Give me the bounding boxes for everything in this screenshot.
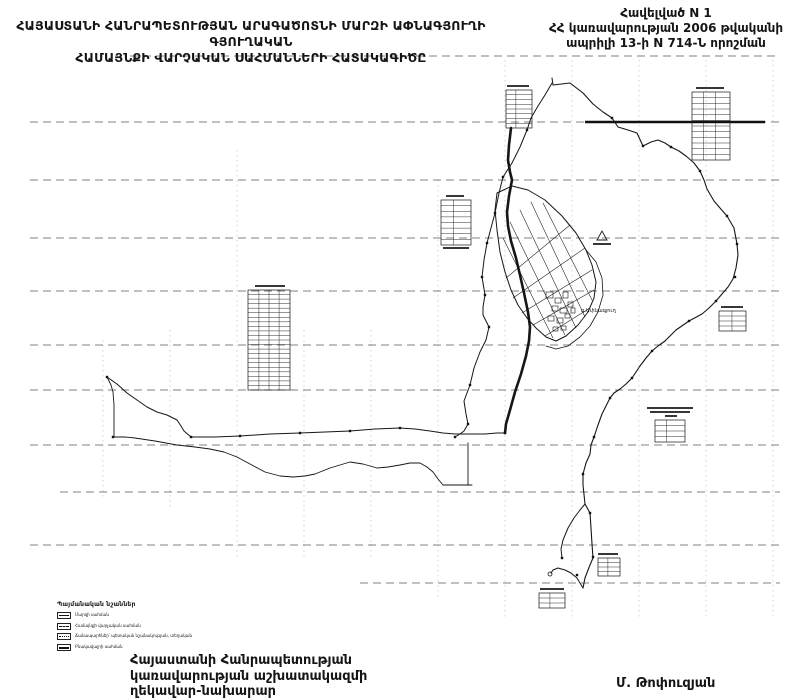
boundary-point-marker	[582, 473, 584, 475]
boundary-point-marker	[484, 294, 486, 296]
appendix-line3: ապրիլի 13-ի N 714-Ն որոշման	[546, 36, 786, 51]
map-canvas: գ.Ափնագյուղ	[0, 0, 788, 700]
boundary-point-marker	[561, 557, 563, 559]
table-caption-smudge	[443, 247, 469, 249]
boundary-point-marker	[651, 350, 653, 352]
legend: Պայմանական նշաններ Մարզի սահման Համայնքի…	[57, 601, 197, 654]
boundary-point-marker	[106, 376, 108, 378]
coord-table-bottom	[539, 588, 565, 608]
settlement-parcel	[546, 292, 553, 298]
boundary-point-marker	[592, 556, 594, 558]
legend-title: Պայմանական նշաններ	[57, 601, 197, 608]
boundary-symbol-icon	[57, 612, 71, 619]
boundary-point-marker	[399, 427, 401, 429]
settlement-parcel	[548, 316, 554, 321]
east-boundary	[553, 83, 738, 588]
settlement-parcel	[565, 314, 570, 318]
boundary-point-marker	[502, 176, 504, 178]
boundary-point-marker	[670, 146, 672, 148]
boundary-point-marker	[526, 129, 528, 131]
boundary-point-marker	[589, 512, 591, 514]
table-caption-smudge	[255, 285, 285, 287]
document-title: ՀԱՅԱՍՏԱՆԻ ՀԱՆՐԱՊԵՏՈՒԹՅԱՆ ԱՐԱԳԱԾՈՏՆԻ ՄԱՐԶ…	[10, 18, 492, 66]
settlement-symbol-icon	[57, 644, 71, 651]
table-caption-smudge	[507, 85, 529, 87]
settlement-parcel	[555, 298, 561, 303]
table-caption-smudge	[696, 87, 724, 89]
boundary-point-marker	[504, 432, 506, 434]
document-title-line2: ՀԱՄԱՅՆՔԻ ՎԱՐՉԱԿԱՆ ՍԱՀՄԱՆՆԵՐԻ ՀԱՏԱԿԱԳԻԾԸ	[10, 50, 492, 66]
coord-table-east	[719, 306, 746, 331]
coord-table-center	[441, 195, 471, 249]
table-caption-smudge	[721, 306, 743, 308]
boundary-point-marker	[239, 435, 241, 437]
boundary-point-marker	[454, 436, 456, 438]
boundary-point-marker	[734, 276, 736, 278]
boundary-point-marker	[642, 145, 644, 147]
coord-table-northeast	[692, 87, 730, 160]
boundary-point-marker	[699, 170, 701, 172]
signature-line3: ղեկավար-նախարար	[130, 684, 370, 700]
signature-line1: Հայաստանի Հանրապետության	[130, 653, 370, 669]
triangle-caption-smudge	[593, 243, 611, 245]
boundary-point-marker	[576, 574, 578, 576]
boundary-point-marker	[481, 276, 483, 278]
settlement-street-mesh	[503, 202, 594, 338]
signature-title-block: Հայաստանի Հանրապետության կառավարության ա…	[130, 653, 370, 700]
legend-item-label: Բնակավայրի սահման	[75, 645, 123, 650]
appendix-line1: Հավելված N 1	[546, 6, 786, 21]
legend-item: Համայնքի վարչական սահման	[57, 623, 197, 630]
boundary-point-marker	[190, 436, 192, 438]
appendix-note: Հավելված N 1 ՀՀ կառավարության 2006 թվակա…	[546, 6, 786, 51]
boundary-point-marker	[349, 430, 351, 432]
legend-item-label: Ճանապարհներ՝ պետական նշանակության, տեղակ…	[75, 634, 192, 639]
south-outlet	[551, 504, 585, 588]
boundary-circle-marker	[548, 572, 552, 576]
boundary-point-marker	[715, 300, 717, 302]
boundary-point-marker	[469, 384, 471, 386]
table-caption-smudge	[665, 415, 677, 417]
appendix-line2: ՀՀ կառավարության 2006 թվականի	[546, 21, 786, 36]
legend-item: Մարզի սահման	[57, 612, 197, 619]
boundary-point-marker	[726, 215, 728, 217]
coord-table-south	[598, 553, 620, 576]
legend-item: Ճանապարհներ՝ պետական նշանակության, տեղակ…	[57, 633, 197, 640]
boundary-point-marker	[631, 377, 633, 379]
legend-item-label: Համայնքի վարչական սահման	[75, 624, 141, 629]
boundary-point-marker	[688, 320, 690, 322]
signer-name: Մ. Թոփուզյան	[616, 676, 715, 691]
boundary-point-marker	[609, 397, 611, 399]
document-title-line1: ՀԱՅԱՍՏԱՆԻ ՀԱՆՐԱՊԵՏՈՒԹՅԱՆ ԱՐԱԳԱԾՈՏՆԻ ՄԱՐԶ…	[10, 18, 492, 50]
boundary-point-marker	[494, 212, 496, 214]
table-caption-smudge	[650, 411, 690, 413]
tail-top-boundary	[107, 377, 505, 437]
boundary-point-marker	[112, 436, 114, 438]
tail-river	[107, 377, 472, 485]
boundary-point-marker	[486, 242, 488, 244]
boundary-point-marker	[467, 423, 469, 425]
boundary-point-marker	[299, 432, 301, 434]
elevation-triangle-icon	[597, 231, 607, 240]
table-caption-smudge	[647, 407, 693, 409]
settlement-parcel	[571, 308, 575, 313]
north-tip-line	[552, 78, 553, 85]
legend-item-label: Մարզի սահման	[75, 613, 109, 618]
boundary-point-marker	[488, 326, 490, 328]
boundary-point-marker	[593, 436, 595, 438]
boundary-point-marker	[736, 243, 738, 245]
legend-item: Բնակավայրի սահման	[57, 644, 197, 651]
scale-note-block	[647, 407, 693, 442]
boundary-point-marker	[611, 117, 613, 119]
table-caption-smudge	[446, 195, 464, 197]
coord-table-west	[248, 285, 290, 390]
table-caption-smudge	[598, 553, 618, 555]
table-frame	[539, 593, 565, 608]
main-road-thick	[505, 128, 530, 433]
boundary-symbol-icon	[57, 623, 71, 630]
signature-line2: կառավարության աշխատակազմի	[130, 669, 370, 685]
coord-table-north	[506, 85, 532, 128]
scanned-map-page: { "header": { "line1": "ՀԱՅԱՍՏԱՆԻ ՀԱՆՐԱՊ…	[0, 0, 788, 700]
village-label: գ.Ափնագյուղ	[581, 308, 617, 314]
road-symbol-icon	[57, 633, 71, 640]
table-caption-smudge	[540, 588, 564, 590]
settlement-parcel	[563, 292, 568, 298]
